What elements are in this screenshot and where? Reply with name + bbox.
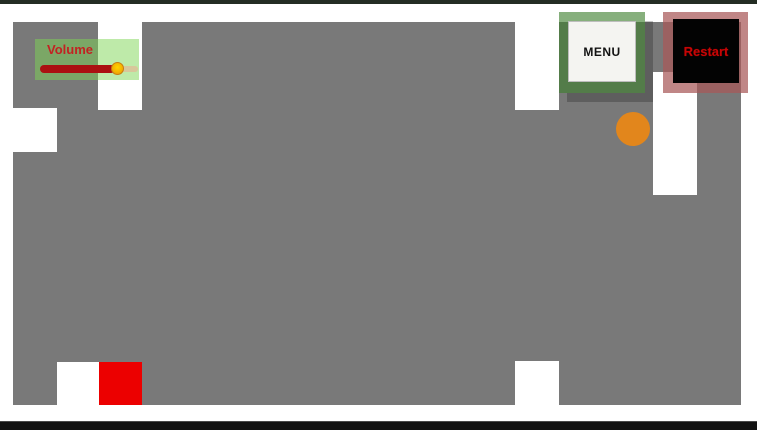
volume-label: Volume xyxy=(47,42,93,57)
menu-button-frame: MENU xyxy=(559,12,645,93)
volume-slider-handle[interactable] xyxy=(111,62,124,75)
volume-slider-track-filled[interactable] xyxy=(40,65,115,73)
passage-top-middle xyxy=(515,22,559,110)
restart-button[interactable]: Restart xyxy=(673,19,739,83)
volume-panel: Volume xyxy=(35,39,139,80)
player-ball xyxy=(616,112,650,146)
passage-left-edge xyxy=(13,108,57,152)
passage-bottom-middle xyxy=(515,361,559,405)
menu-button[interactable]: MENU xyxy=(568,21,636,82)
restart-button-frame: Restart xyxy=(663,12,748,93)
passage-bottom-left xyxy=(57,362,99,405)
letterbox-top xyxy=(0,0,757,4)
game-viewport: Volume MENU Restart xyxy=(0,0,757,430)
goal-block xyxy=(99,362,142,405)
letterbox-bottom xyxy=(0,421,757,430)
